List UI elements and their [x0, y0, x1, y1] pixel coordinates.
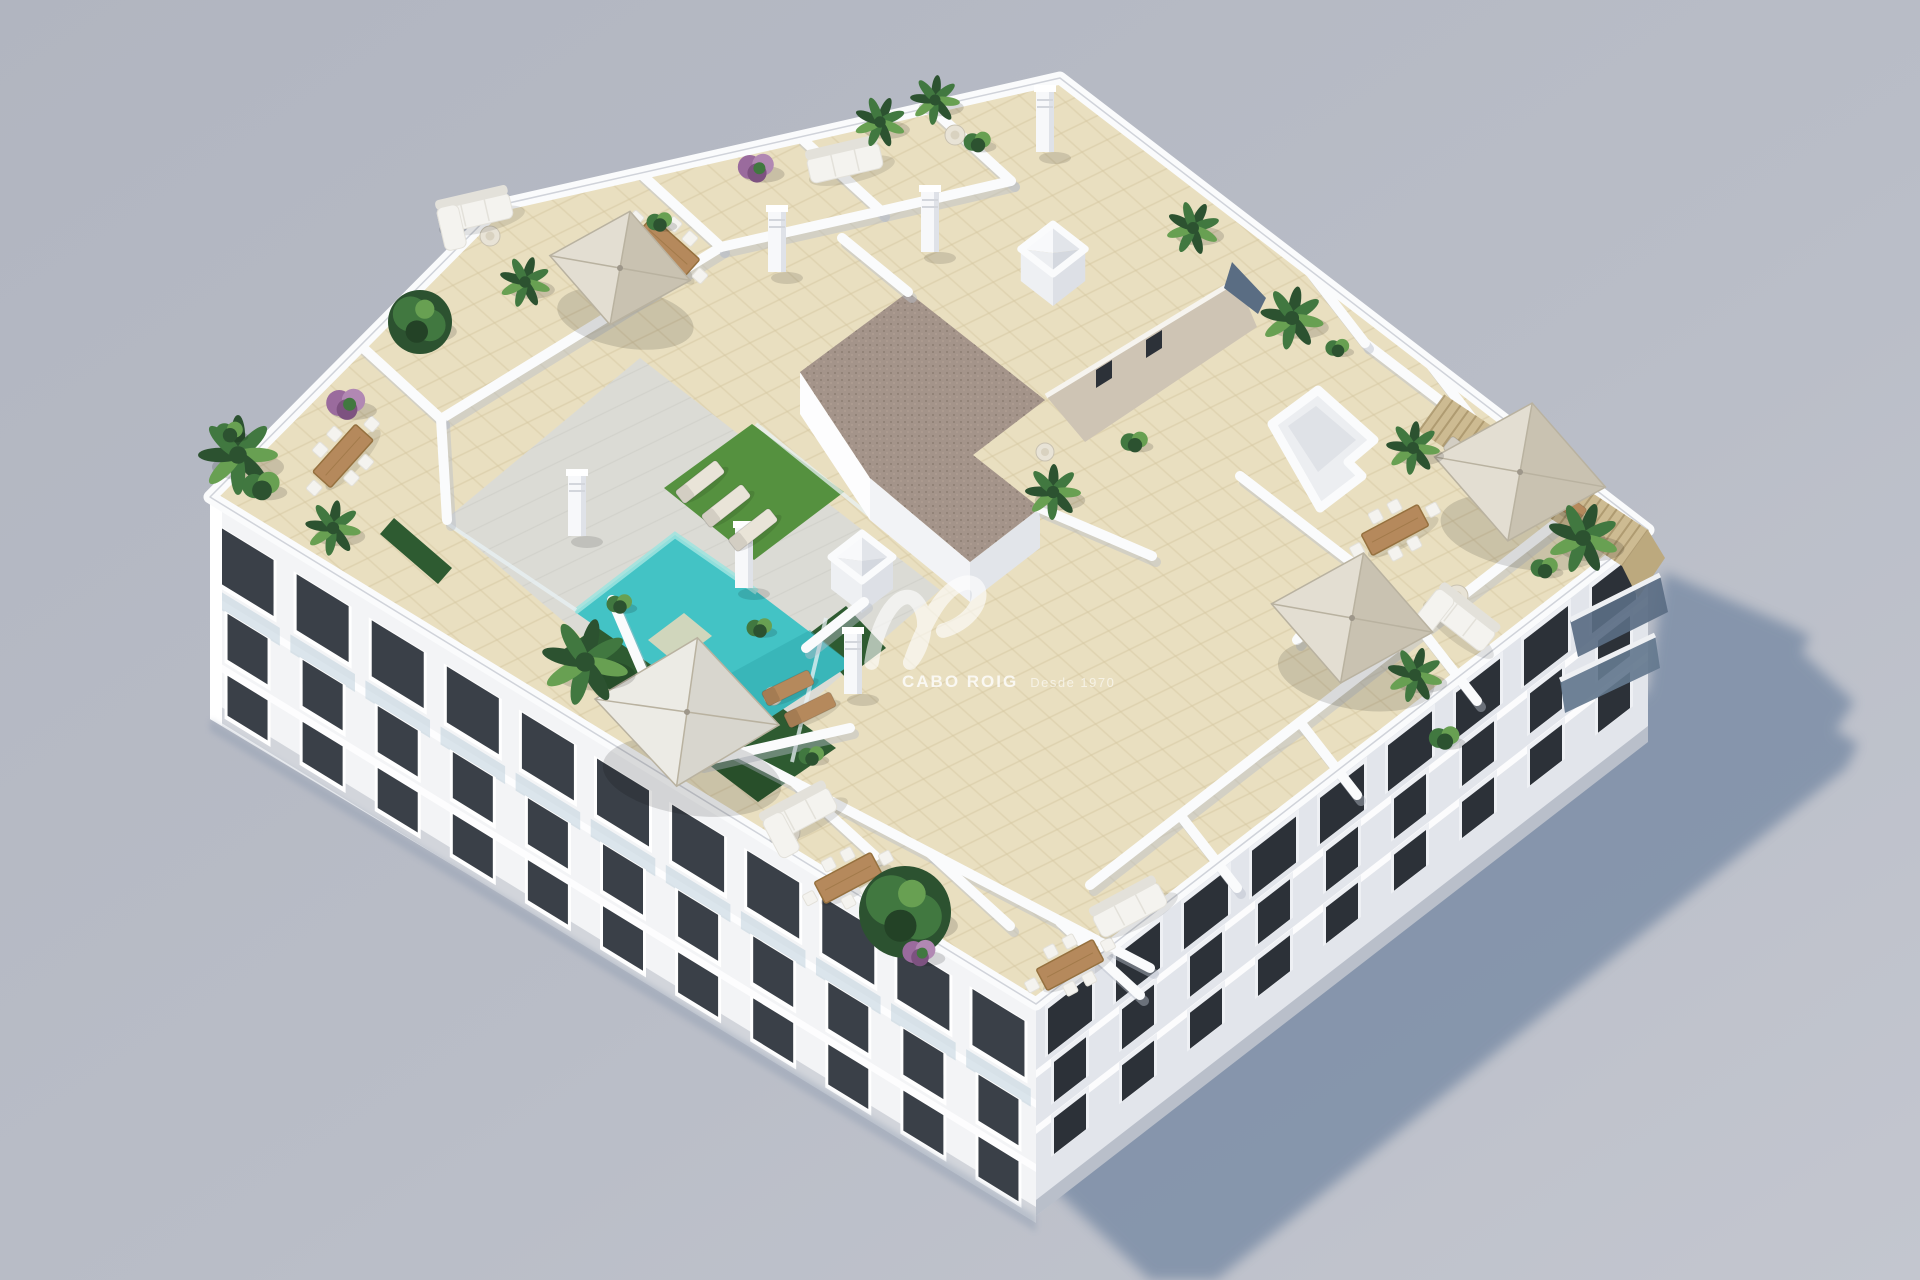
- aerial-building-render: CABO ROIG Desde 1970: [0, 0, 1920, 1280]
- facade-west-edge: [210, 497, 222, 726]
- render-canvas: [0, 0, 1920, 1280]
